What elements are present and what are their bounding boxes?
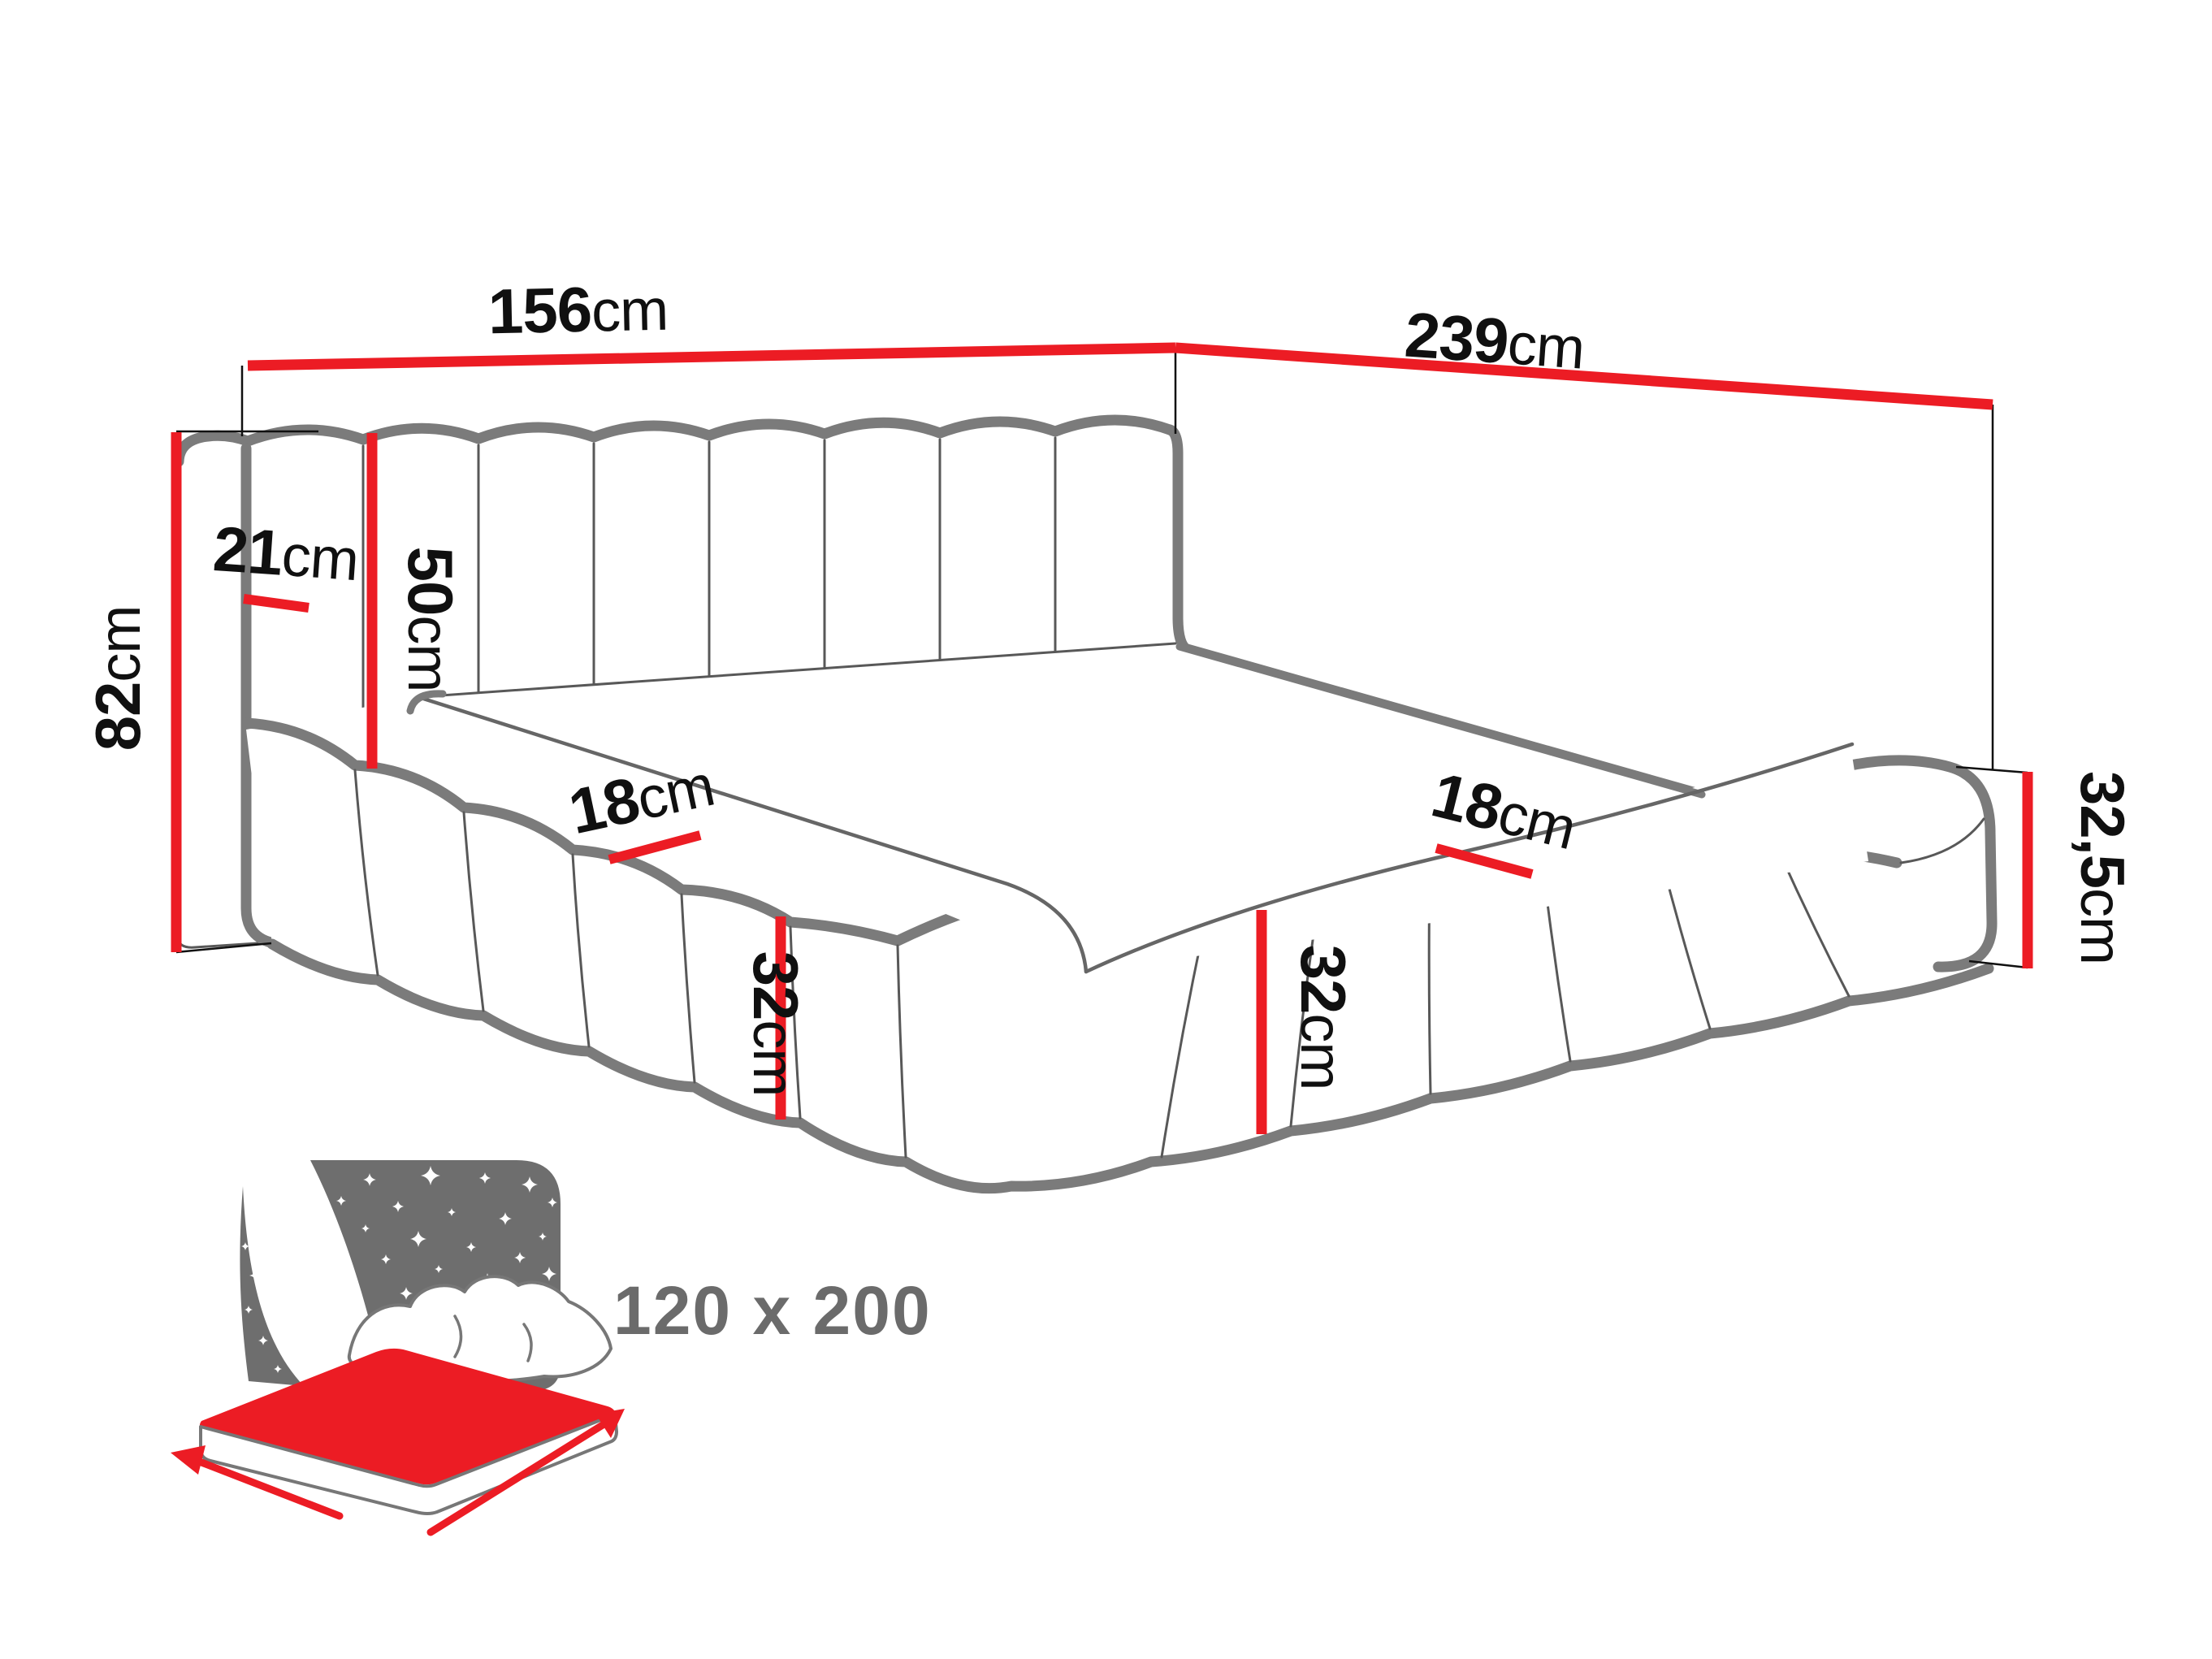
star-icon: [246, 1206, 258, 1218]
mattress-size-icon: [171, 1160, 625, 1532]
diagram-canvas: 156cm 239cm 82cm 21cm 50cm 18cm 18cm 32c…: [0, 0, 2212, 1659]
bed-dimension-diagram: 156cm 239cm 82cm 21cm 50cm 18cm 18cm 32c…: [0, 0, 2212, 1659]
star-icon: [266, 1294, 274, 1302]
dim-line-156: [248, 348, 1175, 366]
label-headboard-50: 50cm: [395, 547, 466, 692]
label-length-239: 239cm: [1403, 298, 1587, 382]
label-frame-height-32-right: 32cm: [1288, 945, 1359, 1090]
label-width-156: 156cm: [487, 272, 669, 348]
night-sky-wedge: [240, 1186, 304, 1386]
label-frame-height-32-5: 32,5cm: [2067, 771, 2136, 964]
dim-line-239: [1175, 348, 1993, 405]
star-icon: [271, 1227, 279, 1235]
label-frame-height-32-left: 32cm: [740, 951, 812, 1097]
label-height-82: 82cm: [82, 606, 154, 752]
mattress-size-text: 120 x 200: [613, 1272, 932, 1349]
